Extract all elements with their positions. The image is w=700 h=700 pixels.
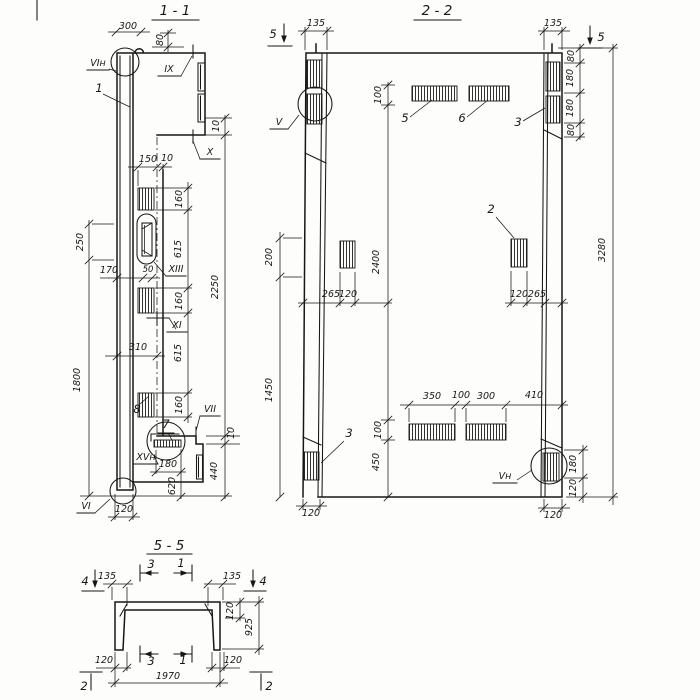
detail-circle-top	[111, 48, 139, 76]
dim-310: 310	[129, 342, 147, 353]
dim-160-c: 160	[174, 396, 185, 414]
dim-620: 620	[167, 477, 178, 495]
technical-drawing: 1 - 1 7	[0, 0, 700, 700]
marks-1-1: VIн 1 IX X XI XIII 8 VII XVн VI	[77, 45, 220, 513]
dim-80-a: 80	[566, 50, 577, 62]
dim-265-left: 265	[322, 289, 340, 300]
label-2: 2	[487, 202, 494, 216]
dim-160-a: 160	[174, 190, 185, 208]
dim-120-right-bottom: 120	[568, 479, 579, 497]
dim-410: 410	[525, 390, 543, 401]
dim-120-bottom-left: 120	[95, 655, 113, 666]
section-5-5: 5 - 5 4 4 3 1 3 1 2 2	[80, 538, 273, 693]
dim-80-b: 80	[566, 124, 577, 136]
detail-circle-bottom	[110, 478, 136, 504]
section-1-1: 1 - 1 7	[72, 3, 240, 521]
mark-XI: XI	[171, 320, 182, 331]
weld-plate	[304, 452, 319, 480]
dim-135-right: 135	[544, 18, 562, 29]
dim-180-right: 180	[568, 455, 579, 473]
section-1-1-title: 1 - 1	[160, 3, 191, 19]
dim-100-bottom: 100	[373, 421, 384, 439]
weld-plate-5	[412, 86, 457, 101]
dim-50: 50	[143, 265, 154, 275]
weld-plate	[307, 60, 322, 88]
dim-135-right: 135	[223, 571, 241, 582]
dim-120-bottom-right: 120	[544, 510, 562, 521]
dim-200: 200	[264, 248, 275, 266]
dim-250: 250	[75, 233, 86, 251]
section-5-5-title: 5 - 5	[154, 538, 185, 554]
mark-XVn: XVн	[135, 452, 155, 463]
mark-IX: IX	[164, 64, 174, 75]
section-2-2: 2 - 2 5	[264, 3, 618, 521]
dim-615-b: 615	[173, 344, 184, 362]
weld-plate	[307, 94, 322, 124]
dim-170: 170	[100, 265, 118, 276]
dim-120-left: 120	[339, 289, 357, 300]
weld-plate-6	[469, 86, 509, 101]
label-3-left: 3	[345, 426, 352, 440]
weld-plates-1-1	[138, 188, 154, 417]
dim-2250: 2250	[210, 275, 221, 299]
label-5: 5	[401, 111, 408, 125]
cut-label-5-left: 5	[269, 27, 276, 41]
dim-1970: 1970	[156, 671, 180, 682]
dim-180-a: 180	[565, 69, 576, 87]
dim-440: 440	[209, 462, 220, 480]
dim-180: 180	[159, 459, 177, 470]
cut-label-3-bottom: 3	[147, 654, 154, 668]
dims-5-5: 135 135 120 925 120 120 1970	[95, 571, 264, 687]
dim-120-right: 120	[510, 289, 528, 300]
embedded-channels-1-1	[197, 63, 206, 479]
cut-label-1-bottom: 1	[179, 653, 186, 667]
mark-VIn: VIн	[90, 58, 106, 69]
cut-label-2-left: 2	[80, 679, 87, 693]
dim-3280: 3280	[597, 238, 608, 262]
mark-Vn: Vн	[499, 471, 512, 482]
dim-925: 925	[244, 618, 255, 636]
label-1: 1	[95, 81, 102, 95]
dim-100-top: 100	[373, 86, 384, 104]
dim-300: 300	[119, 21, 137, 32]
dim-450: 450	[371, 453, 382, 471]
dim-615-a: 615	[173, 240, 184, 258]
dim-265-right: 265	[528, 289, 546, 300]
dim-160-b: 160	[174, 292, 185, 310]
dim-120-flange: 120	[225, 602, 236, 620]
cut-label-4-right: 4	[259, 574, 266, 588]
weld-plate	[546, 96, 560, 123]
label-3-right: 3	[514, 115, 521, 129]
cut-label-4-left: 4	[81, 574, 88, 588]
dim-10-bottom: 10	[226, 427, 237, 439]
dim-10-mid: 10	[161, 153, 173, 164]
weld-plate	[466, 424, 506, 440]
cut-label-3-top: 3	[147, 557, 154, 571]
dim-120-bottom-right: 120	[224, 655, 242, 666]
oval-detail-xiii	[137, 214, 156, 264]
dim-300: 300	[477, 391, 495, 402]
dim-1800: 1800	[72, 368, 83, 392]
weld-plate	[409, 424, 455, 440]
mark-VII: VII	[204, 404, 216, 415]
mark-X: X	[206, 147, 214, 158]
dim-120: 120	[115, 504, 133, 515]
dim-10-top: 10	[211, 120, 222, 132]
dim-120-bottom-left: 120	[302, 508, 320, 519]
label-6: 6	[458, 111, 465, 125]
mark-VI: VI	[81, 501, 90, 512]
channel-profile-5-5	[115, 602, 220, 650]
weld-plate	[543, 453, 559, 481]
cut-label-5-right: 5	[597, 30, 604, 44]
dim-135-left: 135	[307, 18, 325, 29]
weld-plate-2	[511, 239, 527, 267]
weld-plate	[546, 62, 560, 91]
weld-plate	[340, 241, 355, 268]
mark-XIII: XIII	[168, 264, 184, 275]
dim-180-b: 180	[565, 99, 576, 117]
weld-plate	[138, 288, 154, 313]
panel-outline-1-1	[110, 48, 205, 504]
mark-V: V	[276, 117, 284, 128]
dim-1450: 1450	[264, 378, 275, 402]
dim-135-left: 135	[98, 571, 116, 582]
label-7: 7	[162, 417, 170, 431]
drawing-sheet: 1 - 1 7	[0, 0, 700, 700]
dim-350: 350	[423, 391, 441, 402]
label-8: 8	[133, 402, 140, 416]
dim-2400: 2400	[371, 250, 382, 274]
dim-100-gap: 100	[452, 390, 470, 401]
dim-80: 80	[155, 34, 166, 46]
cut-label-2-right: 2	[265, 679, 272, 693]
section-2-2-title: 2 - 2	[422, 3, 453, 19]
weld-plate	[138, 188, 154, 210]
cut-label-1-top: 1	[177, 556, 184, 570]
dim-150: 150	[139, 154, 157, 165]
